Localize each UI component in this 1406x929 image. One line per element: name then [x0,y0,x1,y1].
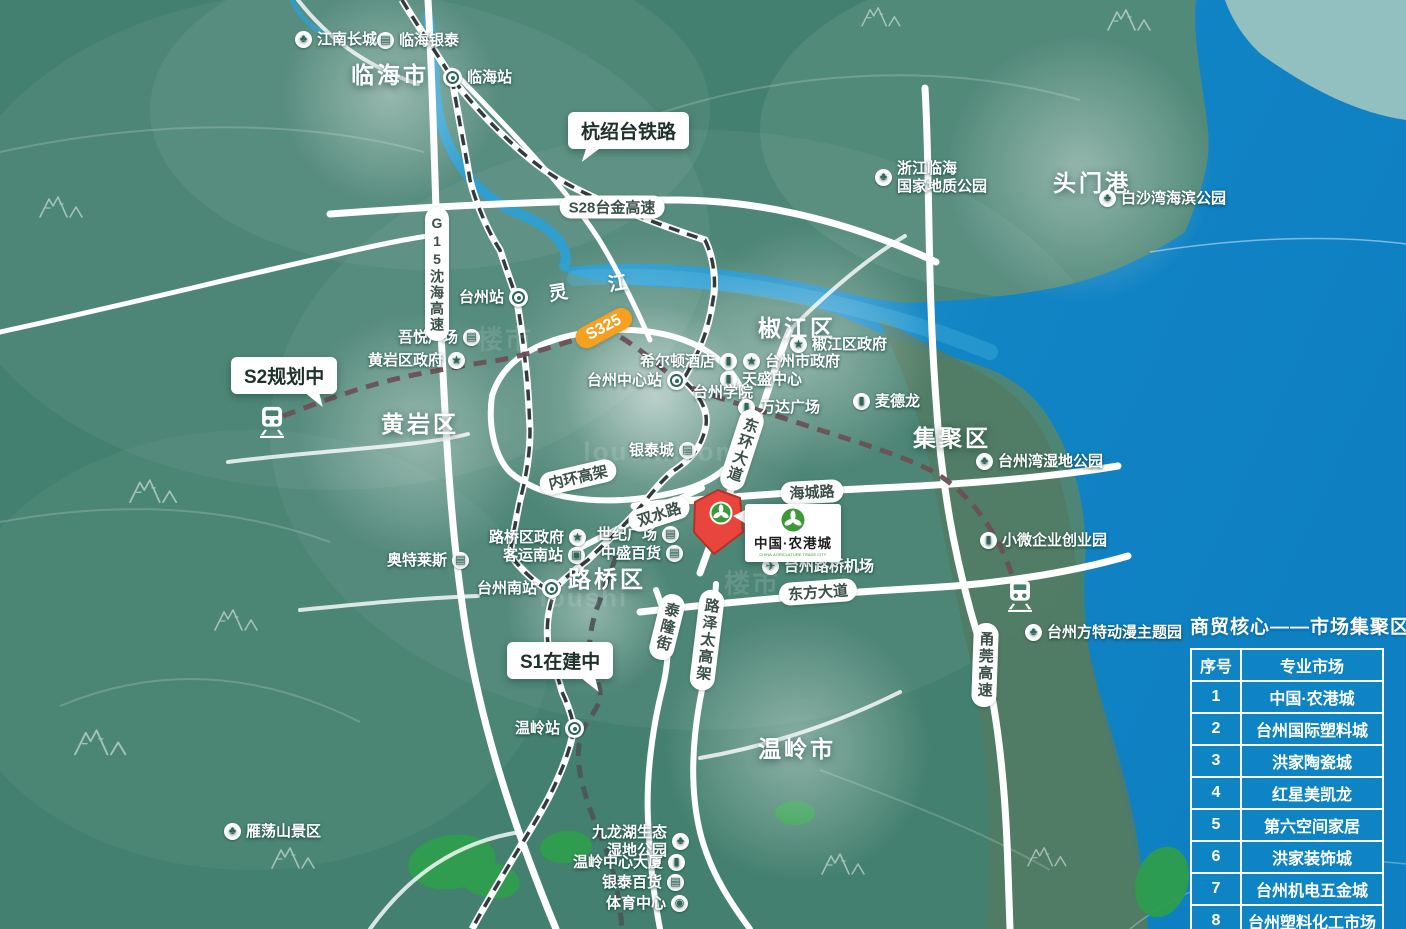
landmark-name-en: CHINA·AGRICULTURE TRADE CITY [760,553,827,558]
poi-luqiao-gov: 路桥区政府★ [489,529,586,547]
poi-label-linhai-yintai: 临海银泰 [399,32,459,50]
watermark: 楼市 [477,320,533,357]
road-label-yongguan: 甬莞高速 [971,623,999,708]
market-row-name: 红星美凯龙 [1241,777,1383,809]
market-table-row: 4红星美凯龙 [1191,777,1383,809]
poi-wenling-tower: 温岭中心大厦▮ [573,854,685,872]
tree-icon: ♣ [1099,190,1116,207]
poi-label-fantawild: 台州方特动漫主题园 [1047,624,1182,642]
landmark-card: 中国·农港城 CHINA·AGRICULTURE TRADE CITY [745,504,841,562]
tree-icon: ♣ [976,453,993,470]
market-table-row: 2台州国际塑料城 [1191,713,1383,745]
market-row-number: 5 [1191,809,1241,841]
poi-linhai-station: 临海站 [443,68,512,87]
station-icon [443,68,462,87]
watermark: loushi [540,583,629,614]
poi-linhai-geopark: ♣浙江临海 国家地质公园 [875,160,987,195]
market-row-name: 洪家装饰城 [1241,841,1383,873]
poi-label-wenling-station: 温岭站 [515,720,560,738]
market-table-row: 8台州塑料化工市场 [1191,905,1383,929]
watermark: loushi.com [583,437,740,468]
poi-label-metro-market: 麦德龙 [875,393,920,411]
road-label-s325: S325 [572,304,637,352]
poi-label-taizhou-center-station: 台州中心站 [587,372,662,390]
district-label-jiju: 集聚区 [913,419,991,453]
landmark-name: 中国·农港城 [754,532,832,552]
market-row-number: 4 [1191,777,1241,809]
poi-metro-market: ▮麦德龙 [853,393,920,411]
poi-huangyan-gov: 黄岩区政府★ [368,352,465,370]
poi-label-sports-center: 体育中心 [606,895,666,913]
market-row-name: 中国·农港城 [1241,681,1383,713]
shop-icon: ▤ [667,874,684,891]
poi-jiaojiang-gov: ★椒江区政府 [790,336,887,354]
poi-label-zhongsheng-dept: 中盛百货 [601,545,661,563]
road-label-luzetai: 路泽太高架 [688,588,725,691]
poi-fantawild: ♣台州方特动漫主题园 [1025,624,1182,642]
star-icon: ★ [569,529,586,546]
poi-label-yandangshan: 雁荡山景区 [246,823,321,841]
poi-south-bus-station: 客运南站▣ [503,547,585,565]
poi-label-taizhou-south-station: 台州南站 [477,580,537,598]
poi-label-baishawan-park: 白沙湾海滨公园 [1121,190,1226,208]
soccer-icon: ◉ [671,895,688,912]
market-row-name: 台州机电五金城 [1241,873,1383,905]
building-icon: ▮ [853,393,870,410]
callout-hangshaotai-railway: 杭绍台铁路 [568,112,689,149]
station-icon [565,719,584,738]
road-label-g15: G15沈海高速 [425,207,449,341]
poi-label-linhai-station: 临海站 [467,69,512,87]
poi-micro-enterprise-park: ▮小微企业创业园 [980,532,1107,550]
callout-s1-under-construction: S1在建中 [507,642,613,679]
market-table-row: 5第六空间家居 [1191,809,1383,841]
poi-taizhou-center-station: 台州中心站 [587,371,686,390]
poi-label-huangyan-gov: 黄岩区政府 [368,352,443,370]
shop-icon: ▤ [662,526,679,543]
district-label-linhai: 临海市 [351,56,429,90]
river-label-lingjiang: 灵 江 [546,265,646,307]
poi-yandangshan: ♣雁荡山景区 [224,823,321,841]
market-row-number: 6 [1191,841,1241,873]
market-table-header-name: 专业市场 [1241,649,1383,681]
poi-label-jiangnan-greatwall: 江南长城 [317,31,377,49]
market-table-row: 1中国·农港城 [1191,681,1383,713]
poi-taizhouwan-wetland: ♣台州湾湿地公园 [976,453,1103,471]
watermark: 楼市 [724,564,780,601]
road-label-s28: S28台金高速 [560,196,665,219]
poi-label-luqiao-gov: 路桥区政府 [489,529,564,547]
market-table: 序号 专业市场 1中国·农港城2台州国际塑料城3洪家陶瓷城4红星美凯龙5第六空间… [1190,648,1384,929]
poi-baishawan-park: ♣白沙湾海滨公园 [1099,190,1226,208]
tree-icon: ♣ [295,31,312,48]
district-label-wenling: 温岭市 [758,730,836,764]
poi-outlets: 奥特莱斯▤ [387,552,469,570]
shop-icon: ▤ [666,545,683,562]
shop-icon: ▤ [377,32,394,49]
poi-jiangnan-greatwall: ♣江南长城 [295,31,377,49]
market-row-name: 第六空间家居 [1241,809,1383,841]
poi-hilton-hotel: 希尔顿酒店▮ [640,353,737,371]
district-label-huangyan: 黄岩区 [381,405,459,439]
building-icon: ▮ [720,353,737,370]
market-row-number: 7 [1191,873,1241,905]
star-icon: ★ [790,336,807,353]
poi-label-outlets: 奥特莱斯 [387,552,447,570]
poi-label-yintai-dept: 银泰百货 [602,874,662,892]
poi-label-taizhouwan-wetland: 台州湾湿地公园 [998,453,1103,471]
building-icon: ▮ [980,532,997,549]
market-table-header-row: 序号 专业市场 [1191,649,1383,681]
road-label-haicheng: 海城路 [780,479,844,505]
poi-label-taizhou-gov: 台州市政府 [765,353,840,371]
market-table-header-no: 序号 [1191,649,1241,681]
poi-label-jiaojiang-gov: 椒江区政府 [812,336,887,354]
market-table-row: 3洪家陶瓷城 [1191,745,1383,777]
market-cluster-panel: 商贸核心——市场集聚区 序号 专业市场 1中国·农港城2台州国际塑料城3洪家陶瓷… [1190,612,1384,929]
poi-taizhou-gov: ★台州市政府 [743,353,840,371]
poi-label-wenling-tower: 温岭中心大厦 [573,854,663,872]
poi-linhai-yintai: ▤临海银泰 [377,32,459,50]
poi-sports-center: 体育中心◉ [606,895,688,913]
poi-yintai-dept: 银泰百货▤ [602,874,684,892]
market-row-number: 1 [1191,681,1241,713]
agri-trade-city-logo-icon [781,508,805,532]
station-icon [509,288,528,307]
market-row-name: 台州国际塑料城 [1241,713,1383,745]
poi-label-south-bus-station: 客运南站 [503,547,563,565]
tree-icon: ♣ [1025,624,1042,641]
market-table-title: 商贸核心——市场集聚区 [1190,612,1384,639]
map-canvas: 临海市黄岩区椒江区集聚区路桥区温岭市头门港灵 江♣江南长城▤临海银泰临海站♣浙江… [0,0,1406,929]
market-table-row: 7台州机电五金城 [1191,873,1383,905]
road-label-tailong: 泰隆街 [647,591,687,662]
poi-zhongsheng-dept: 中盛百货▤ [601,545,683,563]
tree-icon: ♣ [875,169,892,186]
road-label-dongfang: 东方大道 [778,578,857,606]
station-icon [667,371,686,390]
market-row-number: 3 [1191,745,1241,777]
poi-label-linhai-geopark: 浙江临海 国家地质公园 [897,160,987,195]
building-icon: ▮ [668,854,685,871]
train-icon [255,404,289,438]
poi-wenling-station: 温岭站 [515,719,584,738]
market-row-number: 2 [1191,713,1241,745]
market-table-row: 6洪家装饰城 [1191,841,1383,873]
market-row-number: 8 [1191,905,1241,929]
tree-icon: ♣ [224,823,241,840]
poi-label-taizhou-station: 台州站 [459,289,504,307]
train-icon [1003,578,1037,612]
market-row-name: 台州塑料化工市场 [1241,905,1383,929]
tree-icon: ♣ [672,833,689,850]
callout-s2-planned: S2规划中 [231,357,337,394]
poi-label-micro-enterprise-park: 小微企业创业园 [1002,532,1107,550]
poi-label-hilton-hotel: 希尔顿酒店 [640,353,715,371]
star-icon: ★ [448,352,465,369]
bus-icon: ▣ [568,547,585,564]
poi-label-wanda-plaza: 万达广场 [760,399,820,417]
shop-icon: ▤ [452,552,469,569]
star-icon: ★ [743,353,760,370]
market-row-name: 洪家陶瓷城 [1241,745,1383,777]
poi-taizhou-station: 台州站 [459,288,528,307]
